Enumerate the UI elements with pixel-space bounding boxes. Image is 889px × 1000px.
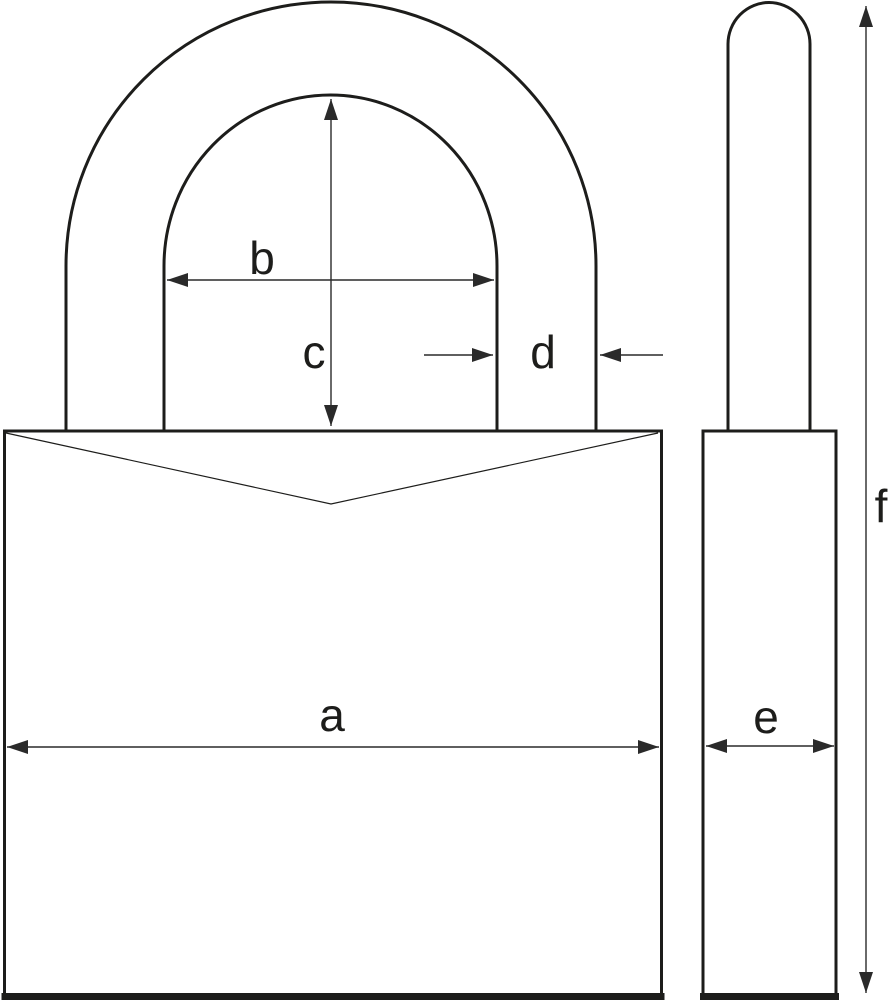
padlock-side-view: e f bbox=[700, 3, 888, 997]
dimension-label-e: e bbox=[753, 691, 779, 743]
dimension-label-d: d bbox=[530, 326, 556, 378]
dimension-label-c: c bbox=[303, 326, 326, 378]
dimension-c: c bbox=[303, 99, 332, 426]
dimension-a: a bbox=[7, 689, 659, 747]
dimension-f: f bbox=[866, 6, 888, 993]
dimension-label-b: b bbox=[249, 232, 275, 284]
side-shackle-outline bbox=[728, 3, 810, 432]
dimension-e: e bbox=[706, 691, 834, 746]
dimension-label-a: a bbox=[319, 689, 345, 741]
front-body-chamfer-line bbox=[6, 433, 658, 504]
dimension-d: d bbox=[424, 326, 663, 378]
dimension-label-f: f bbox=[875, 480, 888, 532]
diagram-canvas: b c d a bbox=[0, 0, 889, 1000]
padlock-front-view: b c d a bbox=[2, 2, 665, 997]
padlock-dimension-diagram: b c d a bbox=[0, 0, 889, 1000]
